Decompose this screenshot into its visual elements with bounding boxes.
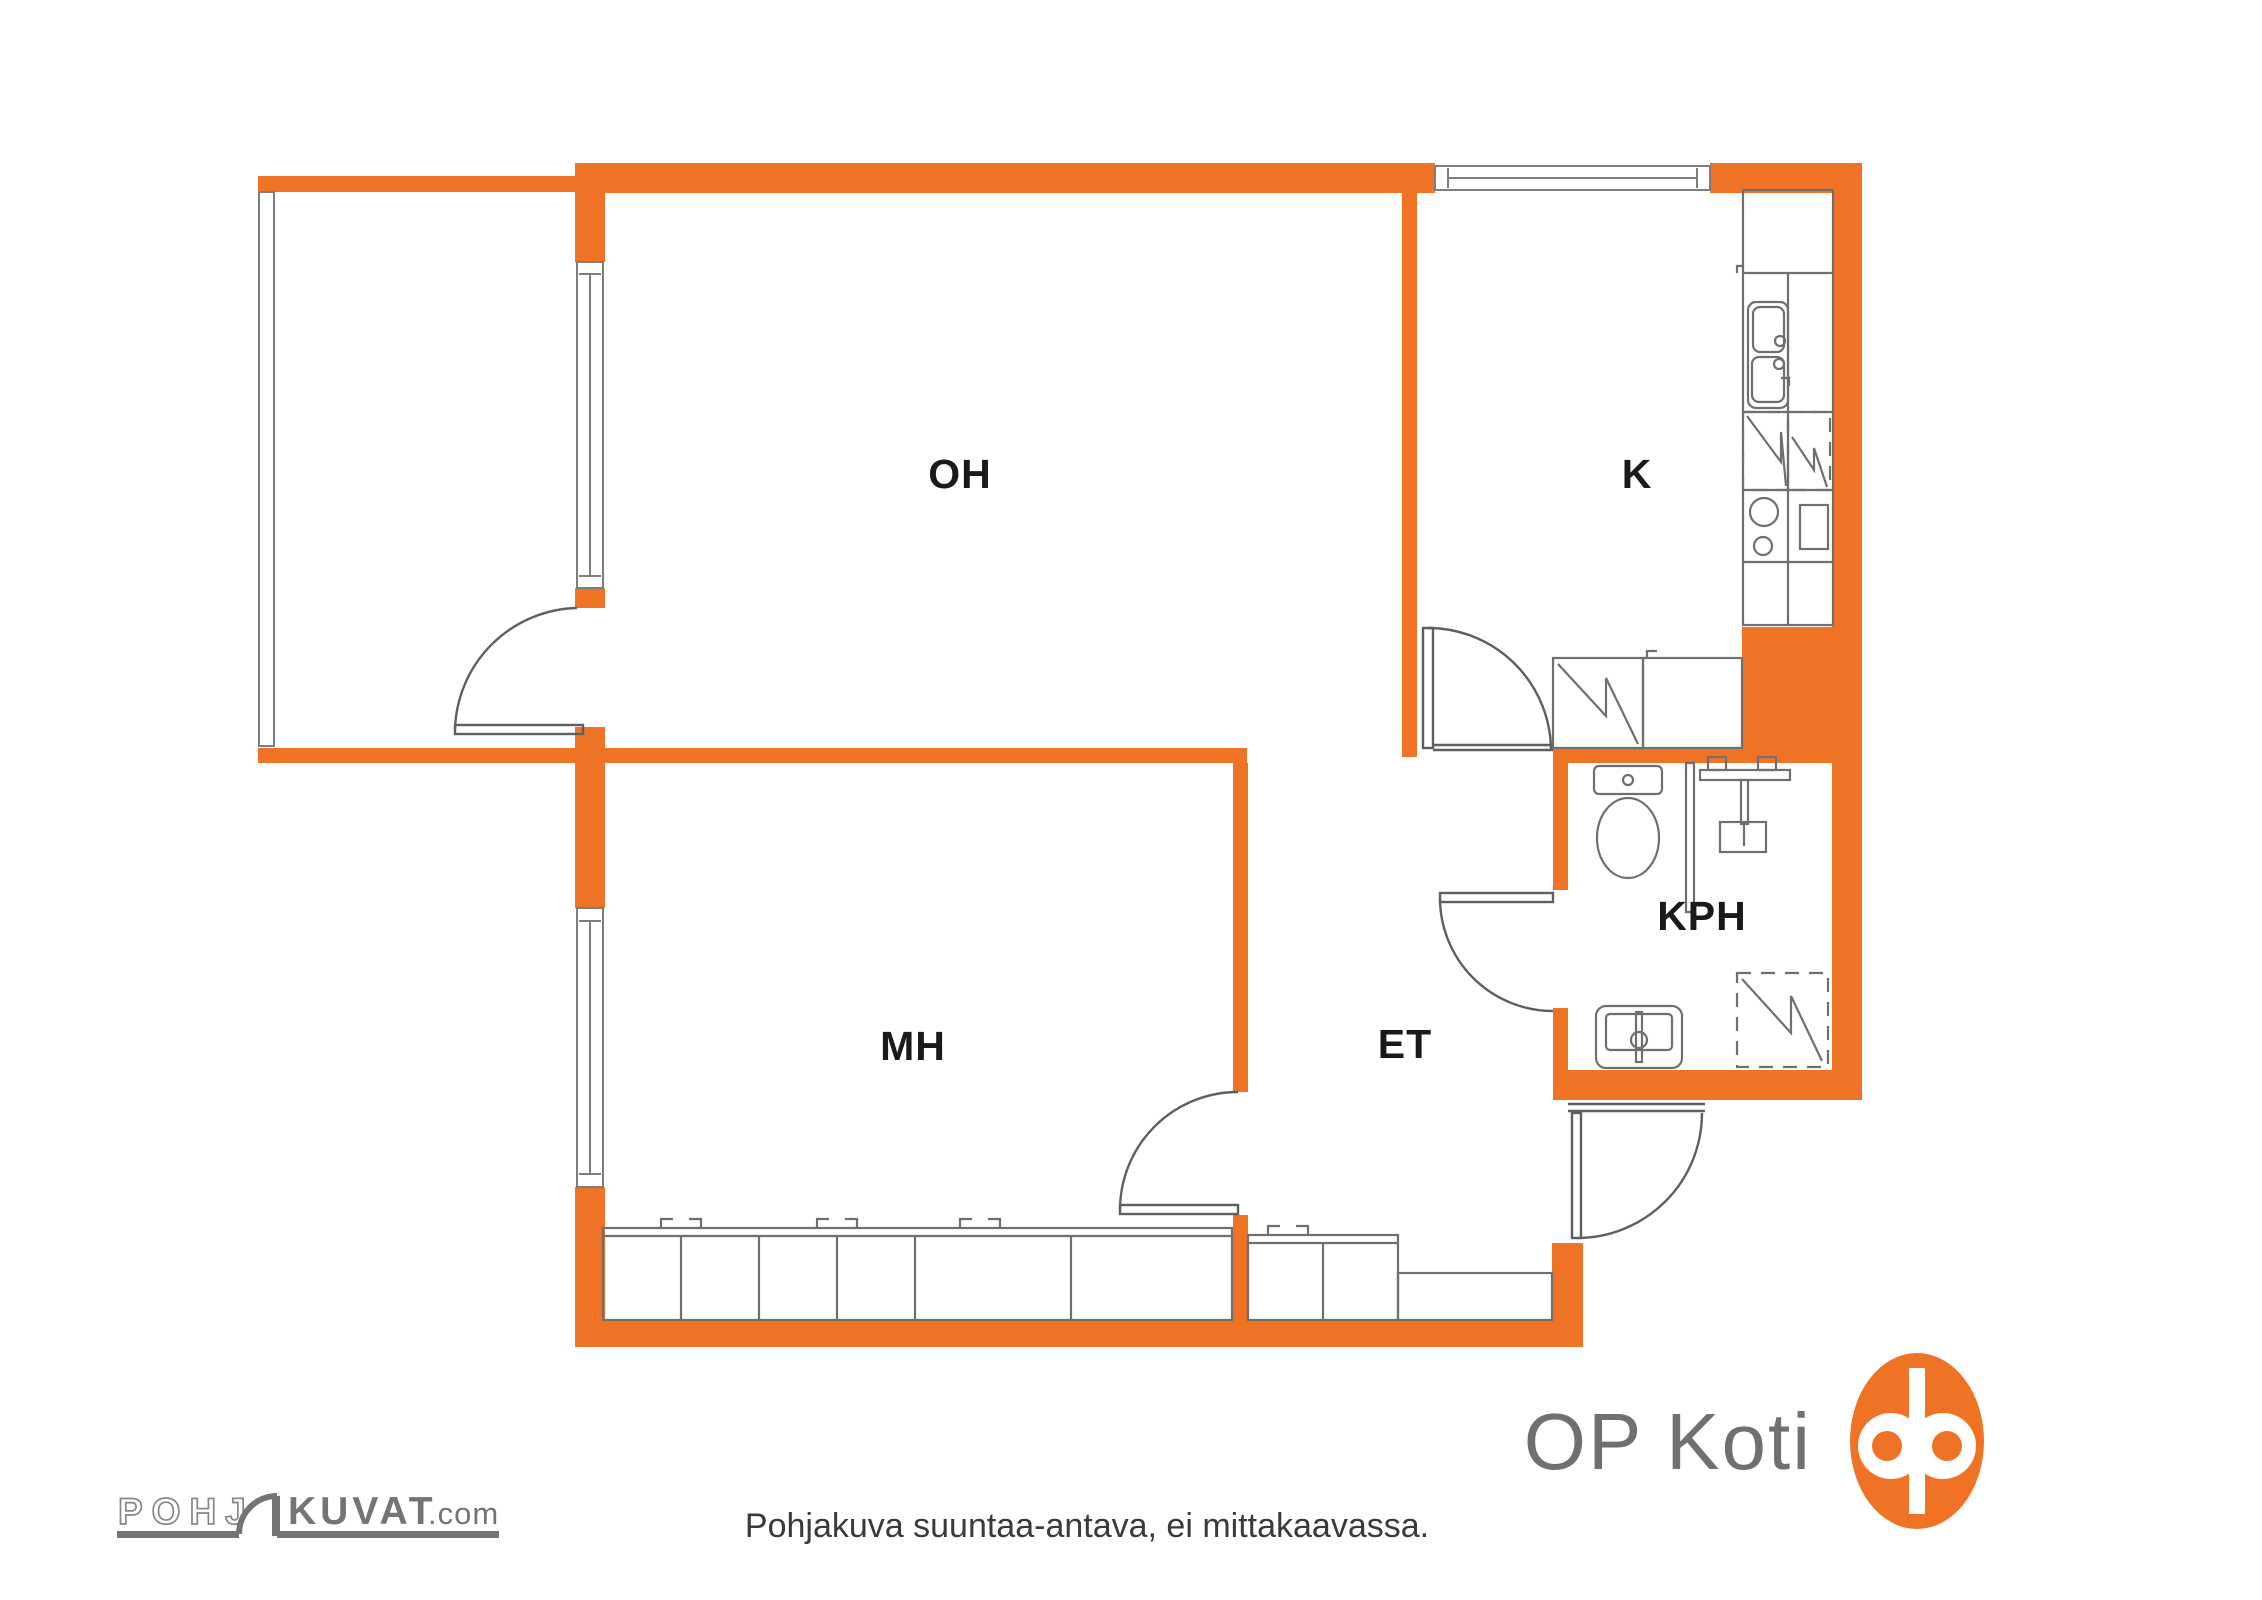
shower-mixer: [1700, 757, 1790, 852]
door-tick: [1268, 1226, 1308, 1235]
floor-plan-page: OH K MH ET KPH POHJ KUVAT .com Pohjakuva…: [0, 0, 2262, 1600]
wardrobes: [603, 1219, 1552, 1320]
toilet: [1594, 766, 1662, 878]
pohjakuvat-part2: KUVAT: [288, 1490, 437, 1533]
doors: [455, 608, 1705, 1238]
dishwasher-dashed: [1743, 412, 1830, 490]
washing-machine: [1737, 973, 1828, 1067]
wall-entrance-stub: [1552, 1243, 1583, 1322]
door-tick: [817, 1219, 857, 1228]
wall-k-kph-block: [1742, 627, 1862, 763]
bathroom-door: [1440, 893, 1553, 1011]
wall-oh-left-stub: [575, 588, 605, 608]
door-tick: [661, 1219, 701, 1228]
wall-mh-et-divider-lower: [1233, 1215, 1248, 1325]
op-koti-text: OP Koti: [1524, 1397, 1812, 1486]
window-kitchen: [1435, 166, 1710, 190]
entrance-door: [1568, 1104, 1705, 1238]
bedroom-door: [1120, 1092, 1238, 1214]
room-label-oh: OH: [928, 451, 992, 497]
wall-kph-bottom: [1553, 1070, 1862, 1100]
room-label-et: ET: [1378, 1021, 1432, 1067]
wall-bottom-exterior: [575, 1320, 1583, 1347]
wall-oh-mh-horizontal: [258, 748, 1247, 763]
door-tick: [960, 1219, 1000, 1228]
shower-partition: [1686, 763, 1694, 912]
wall-oh-left-pillar: [575, 193, 605, 262]
window-balcony-oh: [577, 262, 603, 588]
pohjakuvat-suffix: .com: [428, 1496, 499, 1531]
wall-kph-left-upper: [1553, 763, 1568, 890]
room-label-mh: MH: [880, 1023, 946, 1069]
kitchen-door: [1423, 628, 1553, 751]
wall-balcony-top: [258, 176, 575, 192]
floor-plan: OH K MH ET KPH POHJ KUVAT .com Pohjakuva…: [0, 0, 2262, 1600]
wall-mh-et-divider-upper: [1233, 763, 1248, 1092]
stove-burners: [1750, 498, 1778, 555]
cabinet-et-low: [1398, 1273, 1552, 1320]
window-mh: [577, 908, 603, 1187]
room-label-k: K: [1622, 451, 1653, 497]
wall-top-left-of-window: [575, 163, 1435, 193]
bathroom-sink: [1596, 1006, 1682, 1068]
oven: [1800, 505, 1828, 549]
appliance-zigzag-right: [1792, 437, 1827, 487]
kitchen-closets: [1553, 651, 1742, 748]
windows: [577, 166, 1710, 1187]
pohjakuvat-part1: POHJ: [118, 1491, 255, 1532]
kitchen-sink: [1748, 302, 1789, 408]
wall-mh-left-upper: [575, 763, 605, 908]
fridge-zigzag: [1558, 664, 1638, 744]
op-koti-logo: OP Koti: [1524, 1353, 1984, 1529]
wardrobe-row-et: [1248, 1226, 1398, 1320]
appliance-zigzag-left: [1747, 416, 1786, 486]
wall-kph-left-lower: [1553, 1008, 1568, 1070]
wall-top-right-of-window: [1710, 163, 1862, 193]
walls: [258, 163, 1862, 1347]
room-label-kph: KPH: [1657, 893, 1747, 939]
disclaimer-text: Pohjakuva suuntaa-antava, ei mittakaavas…: [745, 1507, 1429, 1545]
balcony-railing: [259, 192, 274, 746]
wardrobe-row-mh: [603, 1219, 1232, 1320]
balcony-door: [455, 608, 583, 734]
wall-oh-left-lower: [575, 727, 605, 748]
pohjakuvat-baseline-left: [117, 1531, 239, 1538]
op-emblem-icon: [1850, 1353, 1984, 1529]
wall-oh-k-divider: [1402, 193, 1417, 757]
pohjakuvat-logo: POHJ KUVAT .com: [117, 1490, 499, 1538]
pohjakuvat-door-leaf: [272, 1496, 280, 1536]
wall-k-bottom: [1553, 748, 1742, 763]
